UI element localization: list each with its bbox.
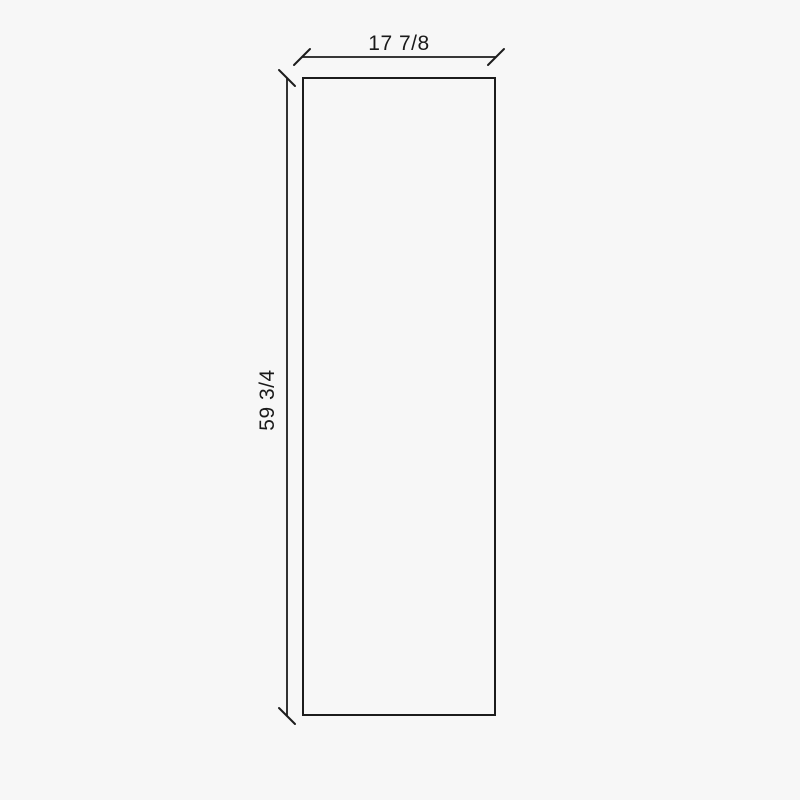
- height-dimension-group: 59 3/4: [256, 70, 295, 724]
- drawing-canvas: 17 7/8 59 3/4: [0, 0, 800, 800]
- width-dimension-label: 17 7/8: [368, 32, 429, 55]
- panel-outline-rect: [303, 78, 495, 715]
- height-dimension-label: 59 3/4: [256, 369, 279, 430]
- dimension-drawing-svg: 17 7/8 59 3/4: [0, 0, 800, 800]
- width-dimension-group: 17 7/8: [294, 32, 504, 65]
